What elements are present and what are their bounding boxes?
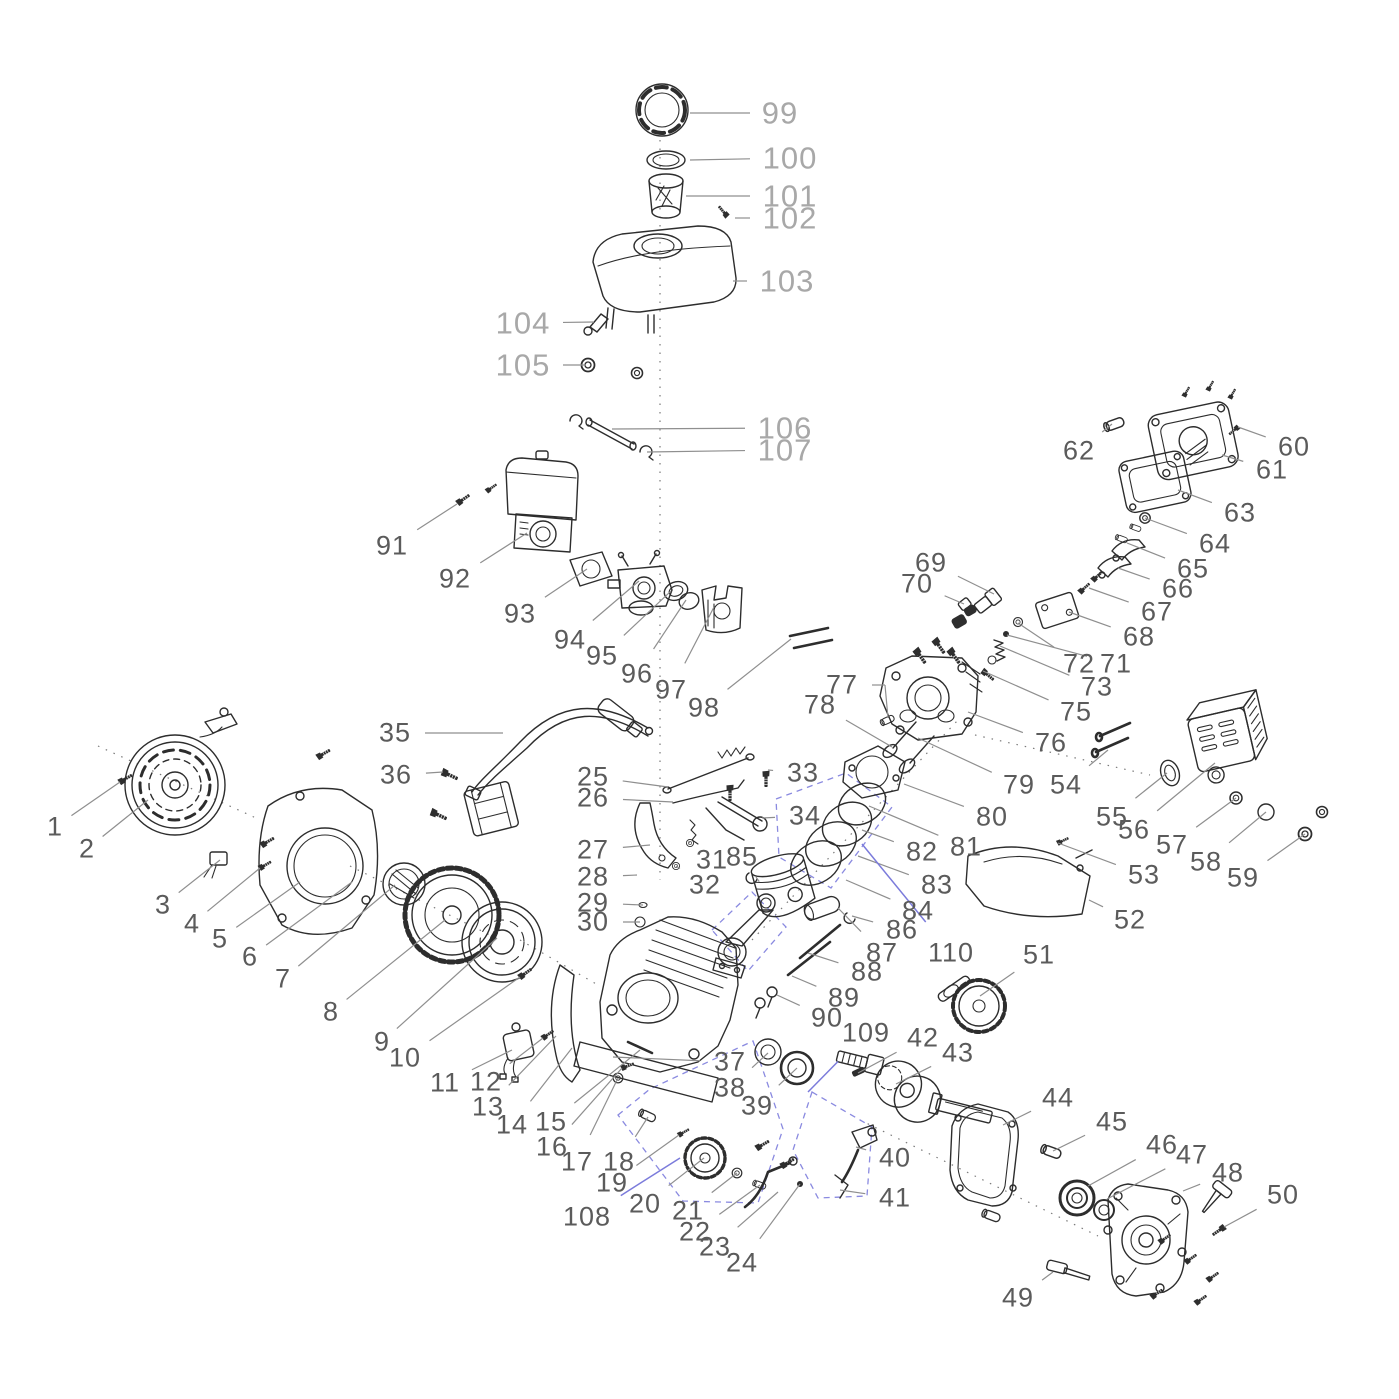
carb-gasket: [570, 552, 612, 586]
housing-bolt: [315, 747, 331, 760]
pin-clip-2: [844, 913, 855, 923]
leader-line-97: [685, 607, 714, 663]
leader-line-5: [236, 882, 300, 927]
fuel-filter-ring: [647, 151, 685, 169]
valve-cap-2: [963, 604, 978, 618]
valves: [881, 722, 934, 776]
leader-line-80: [904, 784, 964, 806]
leader-line-46: [1088, 1160, 1136, 1186]
engine-block: [574, 917, 738, 1102]
airbox-screw-2: [485, 482, 498, 494]
governor-lever: [690, 797, 767, 844]
case-bolt: [754, 1138, 770, 1151]
leader-line-84: [846, 880, 890, 899]
heat-shield: [966, 847, 1092, 917]
leader-line-3: [179, 860, 220, 893]
piston-ring-box: [776, 773, 892, 888]
valve-cap: [950, 613, 968, 630]
highlight-boxes: [618, 773, 892, 1203]
cover-dowel: [1040, 1144, 1062, 1159]
leader-line-95: [624, 591, 671, 635]
leader-line-73: [1000, 646, 1069, 675]
blower-housing: [259, 788, 378, 934]
cover-bearing-small: [1094, 1200, 1114, 1220]
cover-bolt-4: [1205, 1270, 1220, 1283]
piston-rings: [783, 775, 894, 895]
head-bolt-2: [946, 647, 962, 666]
leader-line-91: [417, 504, 457, 530]
leader-line-87: [838, 908, 861, 932]
piston-pin: [802, 894, 841, 921]
leader-line-60: [1238, 427, 1266, 437]
leader-line-58: [1229, 812, 1266, 843]
leader-line-69: [958, 576, 994, 594]
leader-line-67: [1089, 588, 1129, 602]
leader-line-77: [885, 685, 888, 718]
leader-line-72: [1018, 623, 1054, 647]
leader-line-45: [1053, 1135, 1085, 1151]
head-gasket: [843, 746, 905, 798]
fuel-filter-cup: [649, 174, 683, 218]
muffler: [1184, 690, 1275, 787]
leader-line-48: [1183, 1184, 1200, 1191]
leader-line-71: [1007, 635, 1087, 656]
leader-line-88: [808, 953, 838, 963]
leader-line-1: [71, 782, 120, 816]
rocker-pivot-2: [1129, 524, 1141, 532]
leader-line-9: [397, 938, 497, 1029]
head-cover: [1146, 400, 1240, 482]
camshaft-gear: [937, 975, 1005, 1032]
leader-line-59: [1267, 834, 1305, 861]
leader-line-83: [858, 856, 909, 875]
leader-line-100: [690, 159, 750, 160]
leader-line-19: [636, 1135, 679, 1166]
leader-line-81: [869, 806, 938, 835]
leader-line-79: [918, 738, 992, 772]
gov-pin: [638, 1108, 657, 1122]
recoil-starter: [125, 708, 237, 835]
valve-spring: [988, 640, 1005, 664]
cover-screw-2: [1181, 386, 1191, 398]
coil-bolt-2: [429, 808, 448, 822]
leader-line-28: [623, 875, 637, 876]
cover-screw-4: [1227, 388, 1237, 400]
leader-line-76: [968, 712, 1023, 733]
leader-line-25: [623, 781, 668, 787]
rocker-plate: [1035, 592, 1079, 629]
stop-switch: [204, 852, 227, 878]
leader-line-2: [103, 800, 148, 836]
fuel-tank: [593, 226, 736, 333]
rocker-pivot: [1115, 534, 1128, 543]
leader-line-51: [980, 972, 1014, 996]
leader-line-43: [896, 1066, 931, 1084]
leader-line-8: [347, 920, 445, 999]
air-filter-housing: [506, 451, 578, 552]
carburetor: [608, 551, 672, 616]
leader-line-75: [983, 671, 1049, 700]
fuel-valve: [584, 314, 608, 335]
leader-line-56: [1157, 763, 1215, 811]
cover-bolt-6: [1193, 1293, 1208, 1306]
leader-line-11: [472, 1050, 512, 1070]
condenser-coil: [500, 1023, 535, 1082]
leader-line-18: [635, 1117, 648, 1137]
leader-line-34: [762, 817, 775, 818]
oil-drain-dipstick: [1046, 1260, 1091, 1280]
governor-rod: [663, 747, 754, 793]
crankcase-side-cover: [1104, 1184, 1188, 1296]
leader-line-29: [623, 904, 643, 905]
exploded-parts-diagram: 1234567891011121314151617181920212223242…: [0, 0, 1399, 1399]
leader-line-49: [1042, 1272, 1053, 1280]
leader-line-36: [426, 772, 443, 773]
leader-line-106: [612, 428, 745, 429]
leader-line-90: [777, 995, 800, 1005]
flywheel: [405, 868, 499, 962]
leader-line-37: [613, 1057, 700, 1061]
assembly-centerlines: [98, 140, 1150, 1236]
leader-line-57: [1196, 798, 1236, 827]
control-bracket: [635, 803, 676, 868]
leader-line-4: [207, 868, 260, 911]
oil-dipstick: [1196, 1180, 1233, 1219]
leader-line-70: [945, 596, 964, 604]
tank-screw: [717, 204, 730, 218]
manifold-studs: [790, 628, 832, 648]
leader-line-108: [621, 1158, 680, 1196]
leader-line-16: [572, 1068, 622, 1125]
tank-nut-2: [631, 367, 642, 378]
leader-line-27: [623, 845, 650, 847]
fuel-line: [586, 418, 636, 450]
muffler-nut-2: [1316, 806, 1327, 817]
cover-pin: [1103, 417, 1125, 432]
leader-line-89: [792, 976, 816, 986]
leader-line-66: [1118, 568, 1150, 579]
governor-arm: [835, 1125, 877, 1198]
cover-screw-3: [1205, 380, 1215, 392]
coil-bolt: [440, 768, 459, 782]
head-bolt: [931, 637, 947, 656]
leader-line-64: [1145, 518, 1187, 534]
bracket-bolt-2: [762, 771, 769, 787]
cylinder-head: [880, 656, 982, 740]
breather-plate: [551, 965, 580, 1082]
diagram-canvas: [0, 0, 1399, 1399]
leader-line-94: [593, 581, 639, 621]
gov-stud: [628, 1042, 652, 1053]
leader-line-110: [862, 844, 926, 922]
leader-line-82: [862, 830, 894, 842]
push-rods: [788, 925, 840, 975]
leader-line-96: [654, 600, 686, 649]
leader-line-6: [266, 882, 352, 945]
leader-lines: [71, 113, 1305, 1280]
leader-line-26: [623, 799, 673, 802]
leader-line-24: [760, 1184, 800, 1239]
valve-keeper: [1003, 631, 1009, 637]
tappets: [755, 987, 777, 1018]
crankshaft: [826, 1046, 999, 1140]
cover-gasket: [950, 1104, 1018, 1206]
gov-screw: [677, 1127, 691, 1138]
airbox-screw: [455, 492, 471, 506]
bracket-bolt: [726, 785, 733, 801]
cover-dowel-2: [981, 1209, 1001, 1223]
carb-insulator: [702, 586, 742, 633]
leader-line-47: [1107, 1169, 1165, 1199]
muffler-bolts: [1092, 723, 1130, 757]
housing-bolt-2: [259, 835, 275, 848]
leader-line-55: [1135, 773, 1167, 798]
leader-line-107: [647, 451, 745, 452]
exhaust-gasket: [1157, 758, 1182, 788]
leader-line-50: [1224, 1209, 1257, 1227]
fuel-tank-cap: [636, 84, 688, 136]
leader-line-52: [1089, 900, 1103, 907]
leader-line-93: [545, 569, 587, 597]
leader-line-98: [728, 639, 791, 689]
leader-line-12: [510, 1038, 543, 1064]
ignition-coil-module: [463, 781, 519, 837]
rocker-arms: [1098, 540, 1145, 578]
governor-gear: [685, 1138, 725, 1178]
crank-arm-box: [793, 1092, 872, 1198]
cover-bolt: [1211, 1224, 1227, 1238]
